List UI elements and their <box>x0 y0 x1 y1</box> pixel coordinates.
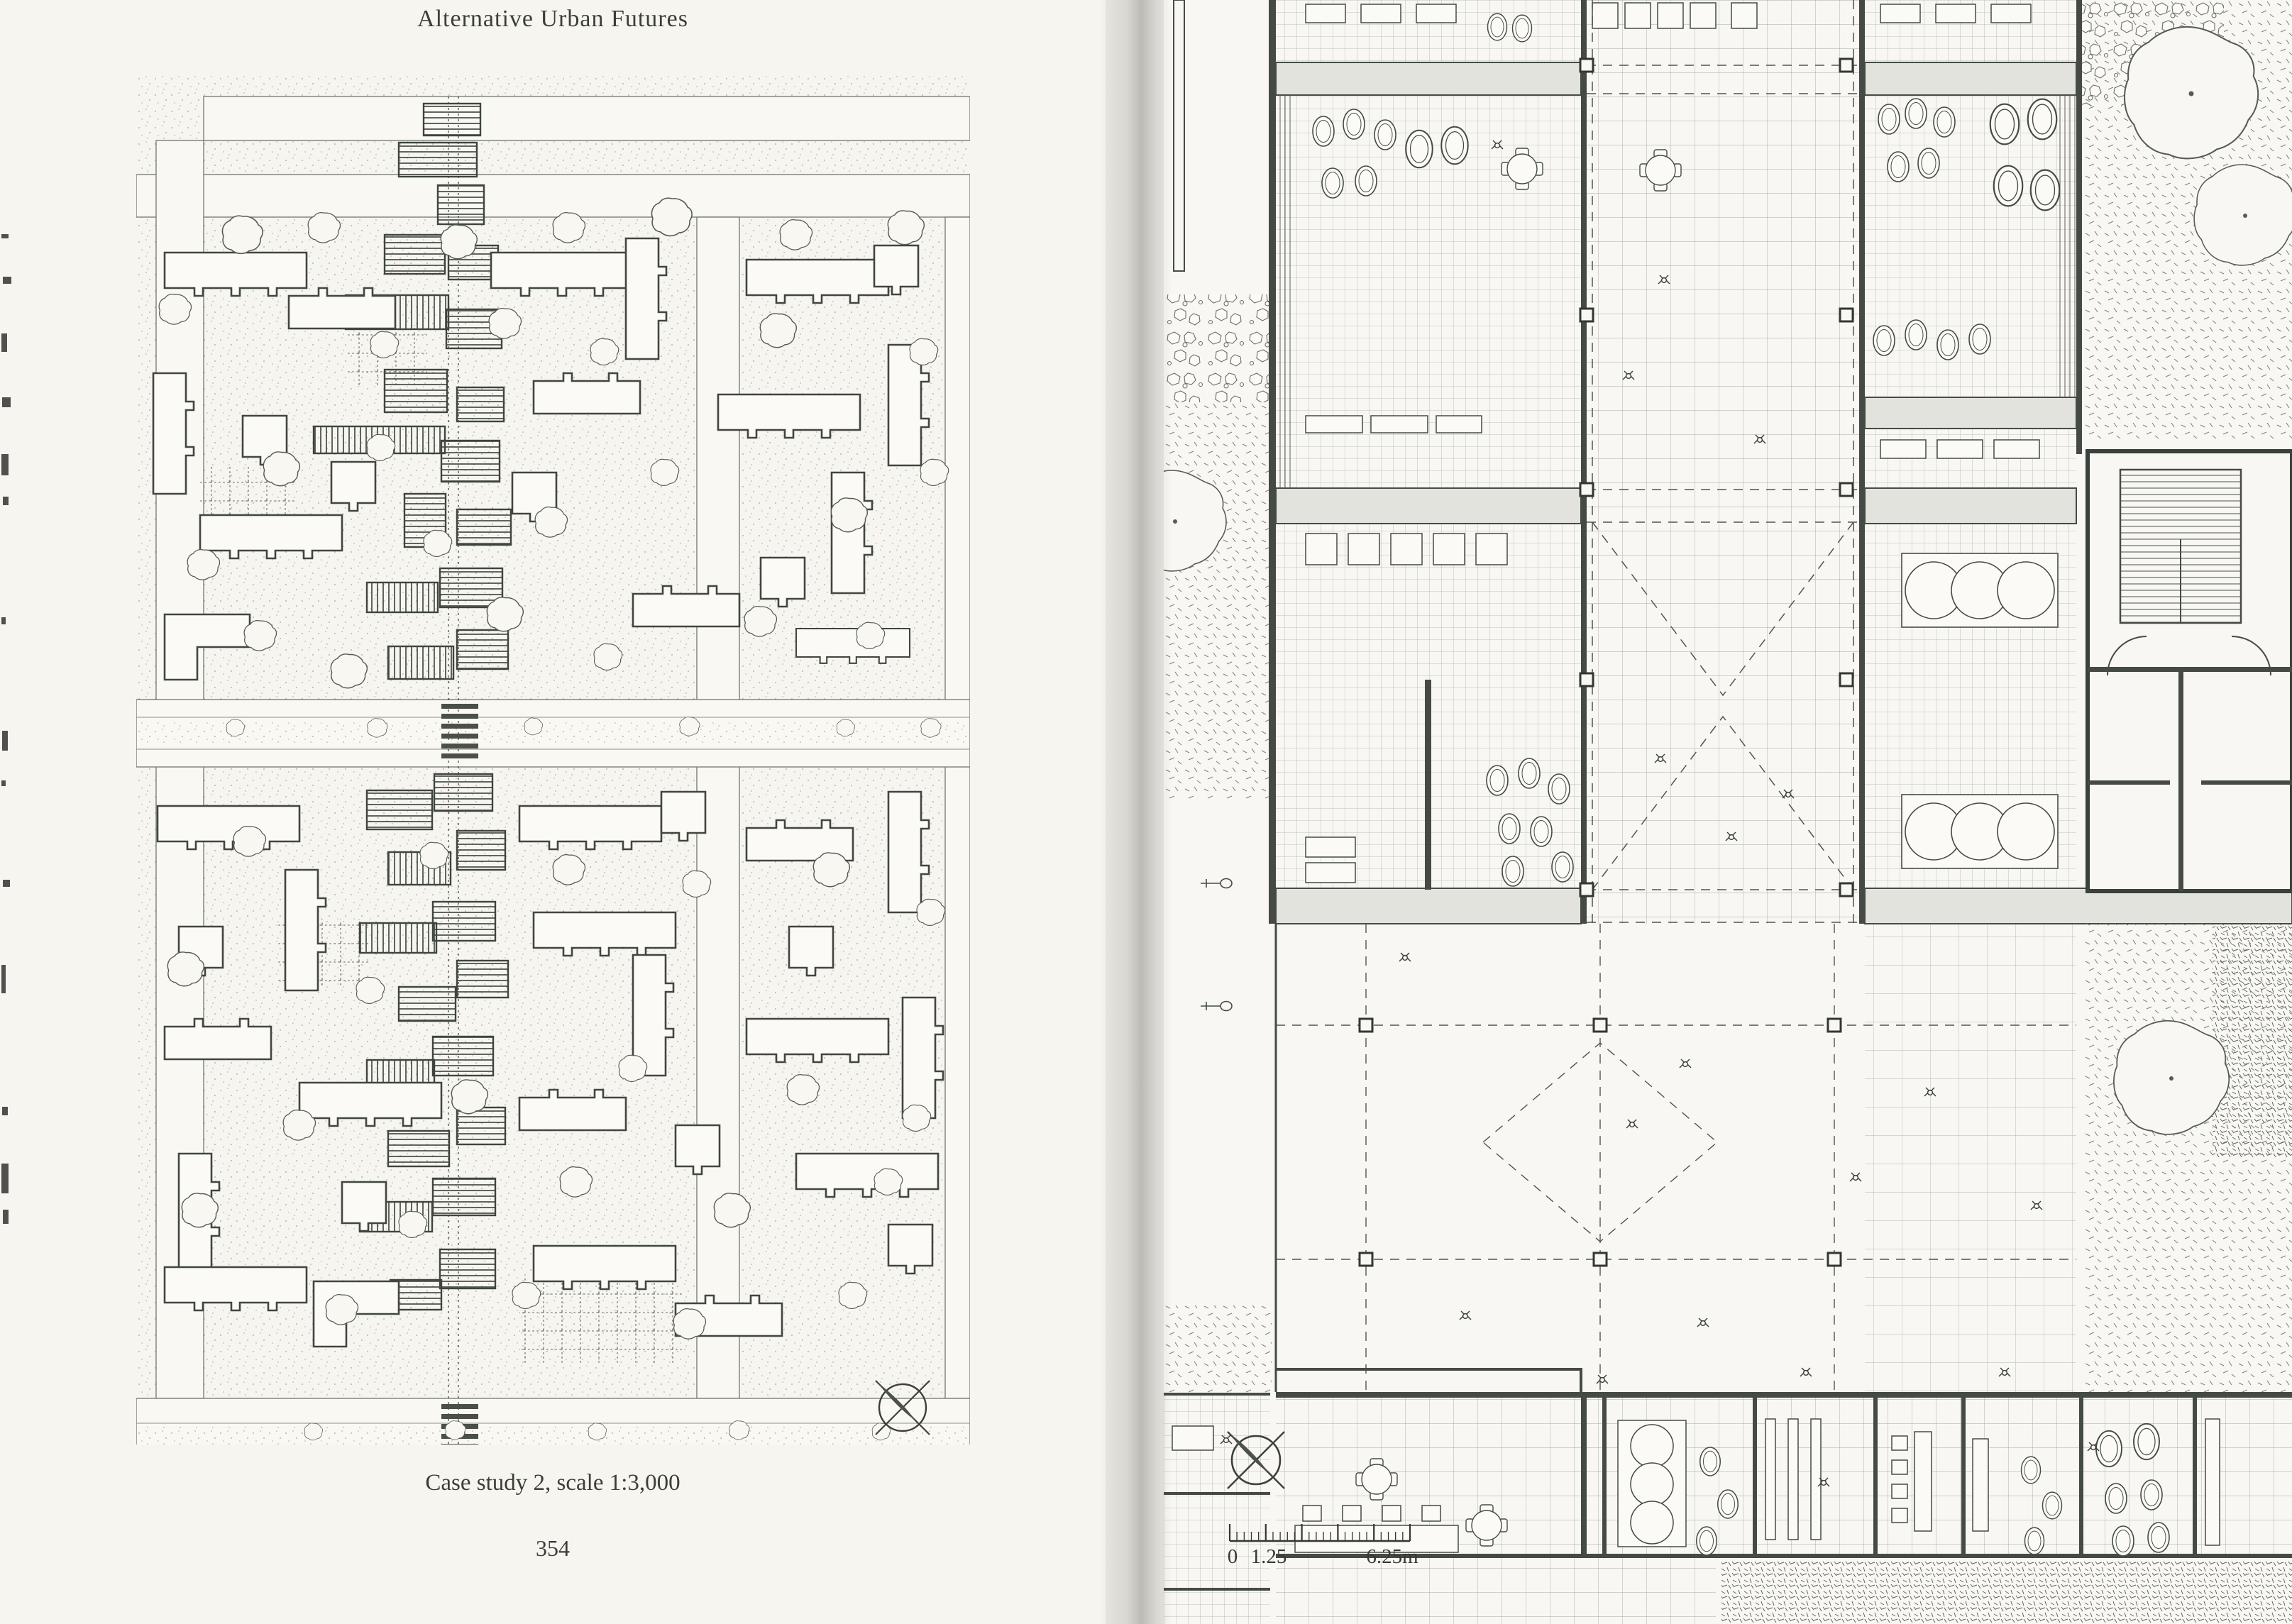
scan-artifact <box>1 333 7 352</box>
scan-artifact <box>1 1164 9 1193</box>
scan-artifact <box>2 397 11 407</box>
scale-label-end: 6.25m <box>1350 1545 1435 1569</box>
page-number: 354 <box>0 1535 1106 1562</box>
scan-artifact <box>3 880 10 887</box>
floor-plan-figure <box>1164 0 2292 1624</box>
scale-label-first: 1.25 <box>1240 1545 1297 1569</box>
book-spread: Alternative Urban Futures <box>0 0 2292 1624</box>
scan-artifact <box>1 965 6 993</box>
scan-artifact <box>1 454 9 475</box>
right-page: 0 1.25 6.25m <box>1164 0 2292 1624</box>
scan-artifact <box>1 617 6 624</box>
left-page: Alternative Urban Futures <box>0 0 1106 1624</box>
book-gutter <box>1098 0 1172 1624</box>
scan-artifact <box>2 1107 8 1115</box>
site-plan-figure <box>136 75 970 1445</box>
running-head: Alternative Urban Futures <box>0 6 1106 33</box>
scan-artifact <box>2 731 8 751</box>
scan-artifact <box>3 277 11 284</box>
scan-artifact <box>1 234 9 238</box>
scan-artifact <box>1 780 6 786</box>
scan-artifact <box>3 1210 9 1224</box>
figure-caption: Case study 2, scale 1:3,000 <box>0 1470 1106 1496</box>
scan-artifact <box>3 497 9 505</box>
